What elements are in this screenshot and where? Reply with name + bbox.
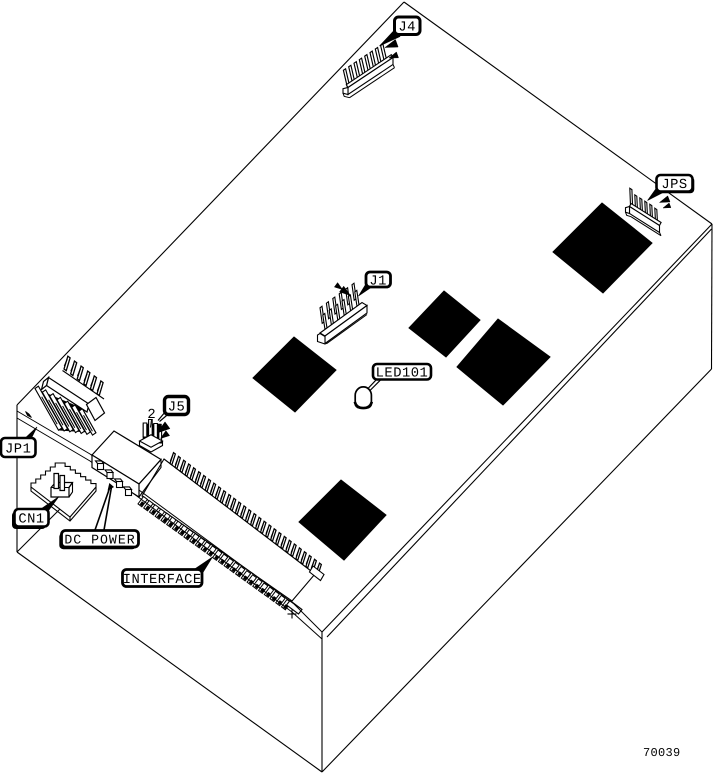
svg-text:LED101: LED101 bbox=[376, 367, 429, 382]
svg-text:J5: J5 bbox=[168, 400, 186, 415]
svg-text:INTERFACE: INTERFACE bbox=[123, 573, 202, 588]
svg-text:70039: 70039 bbox=[643, 746, 681, 760]
svg-text:CN1: CN1 bbox=[18, 513, 44, 528]
svg-text:JPS: JPS bbox=[661, 178, 687, 193]
svg-text:J1: J1 bbox=[369, 274, 387, 289]
svg-text:J4: J4 bbox=[398, 21, 416, 36]
svg-text:DC POWER: DC POWER bbox=[64, 532, 135, 547]
svg-text:JP1: JP1 bbox=[5, 442, 31, 457]
